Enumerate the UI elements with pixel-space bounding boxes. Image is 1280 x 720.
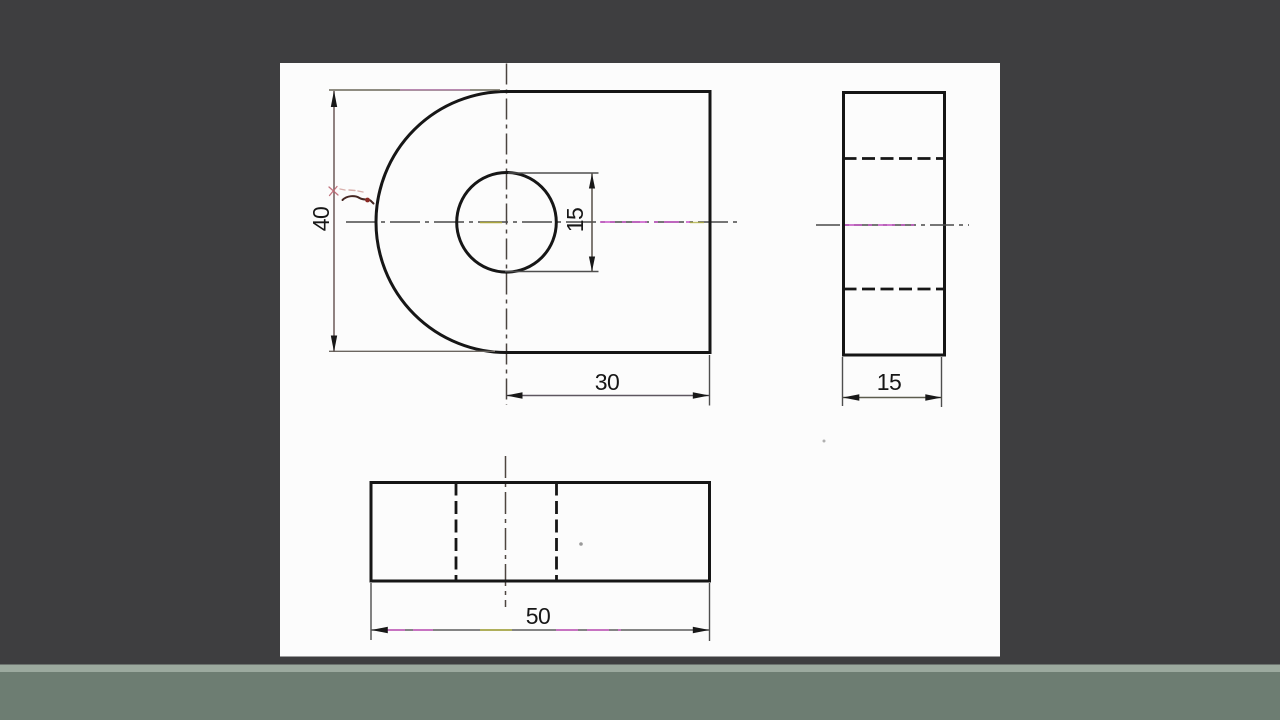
svg-text:50: 50 [526, 603, 551, 629]
svg-text:15: 15 [562, 208, 588, 233]
svg-text:30: 30 [595, 369, 620, 395]
svg-text:40: 40 [308, 207, 334, 232]
svg-text:15: 15 [877, 369, 902, 395]
